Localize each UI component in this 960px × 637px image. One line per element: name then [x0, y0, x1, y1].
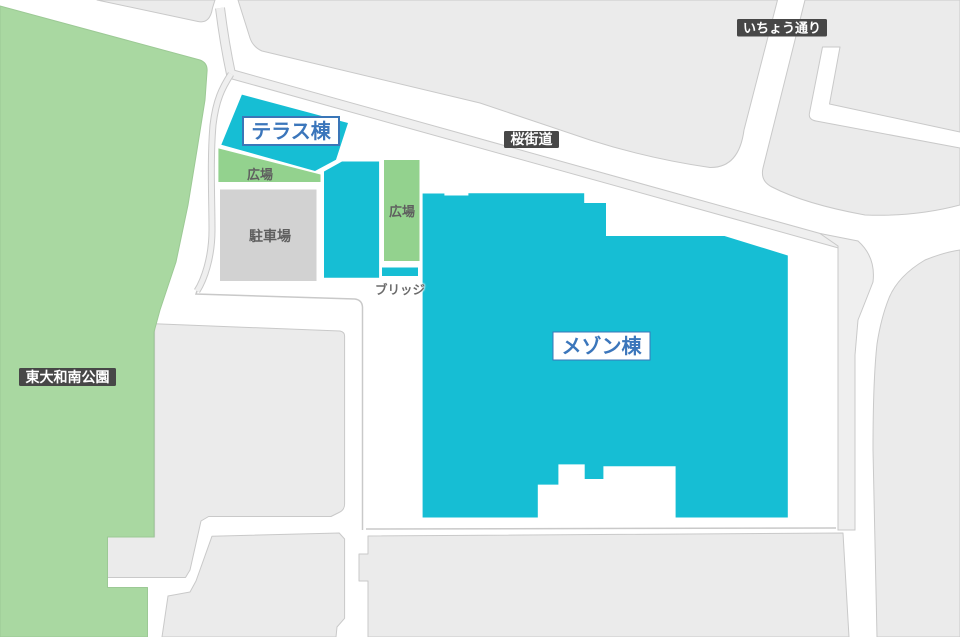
svg-text:テラス棟: テラス棟 [251, 119, 332, 143]
svg-text:広場: 広場 [389, 204, 415, 219]
svg-text:いちょう通り: いちょう通り [743, 21, 821, 36]
svg-text:ブリッジ: ブリッジ [375, 282, 426, 297]
svg-text:広場: 広場 [247, 167, 273, 182]
svg-text:桜街道: 桜街道 [511, 131, 553, 147]
svg-text:駐車場: 駐車場 [249, 228, 291, 244]
svg-text:東大和南公園: 東大和南公園 [26, 369, 110, 385]
svg-text:メゾン棟: メゾン棟 [562, 334, 643, 358]
